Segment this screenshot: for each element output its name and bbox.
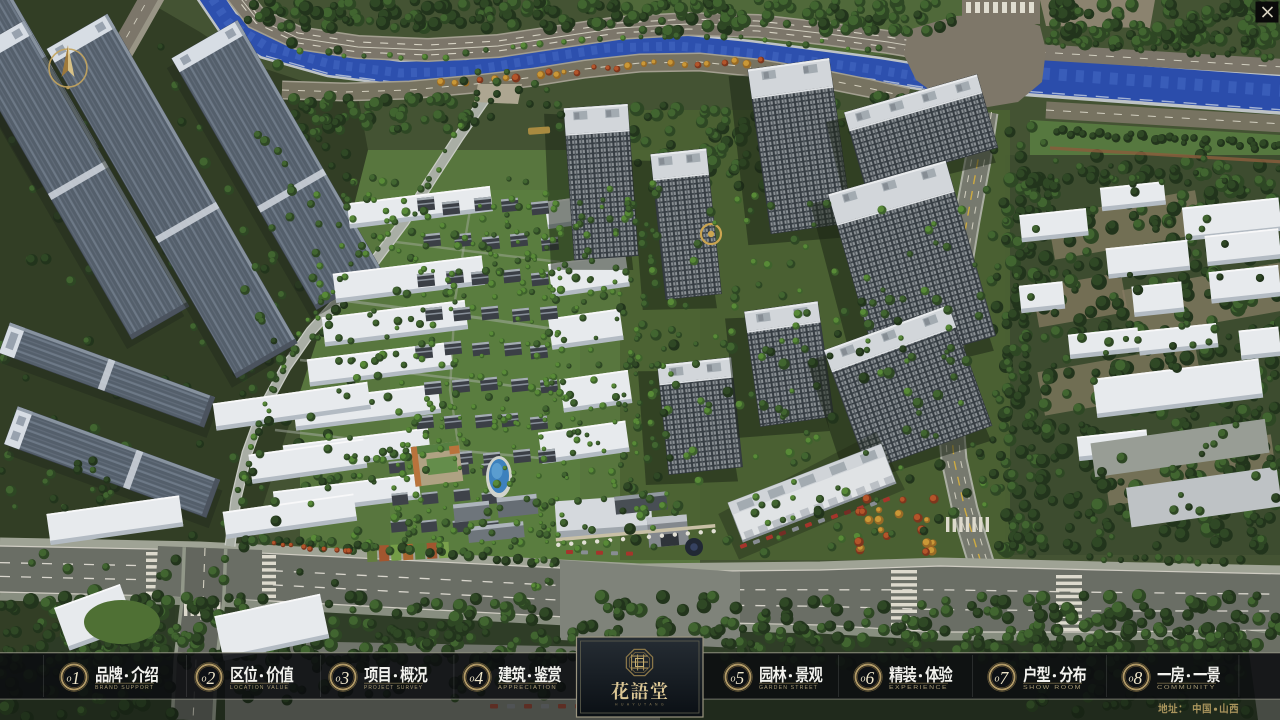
svg-text:SHOW ROOM: SHOW ROOM: [1023, 685, 1082, 691]
svg-text:5: 5: [736, 668, 745, 688]
svg-text:6: 6: [866, 668, 875, 688]
svg-text:H U A Y U T A N G: H U A Y U T A N G: [615, 703, 665, 707]
svg-text:COMMUNITY: COMMUNITY: [1157, 685, 1216, 691]
svg-text:4: 4: [475, 668, 484, 688]
svg-text:APPRECIATION: APPRECIATION: [498, 685, 557, 691]
svg-text:8: 8: [1134, 668, 1143, 688]
svg-text:GARDEN STREET: GARDEN STREET: [759, 685, 818, 691]
svg-text:1: 1: [72, 668, 81, 688]
svg-text:PROJECT SURVEY: PROJECT SURVEY: [364, 685, 423, 691]
svg-text:BRAND SUPPORT: BRAND SUPPORT: [95, 685, 154, 691]
svg-text:3: 3: [340, 668, 350, 688]
svg-text:LOCATION VALUE: LOCATION VALUE: [230, 685, 289, 691]
svg-text:7: 7: [1000, 668, 1010, 688]
svg-text:2: 2: [207, 668, 216, 688]
svg-text:EXPERIENCE: EXPERIENCE: [889, 685, 948, 691]
